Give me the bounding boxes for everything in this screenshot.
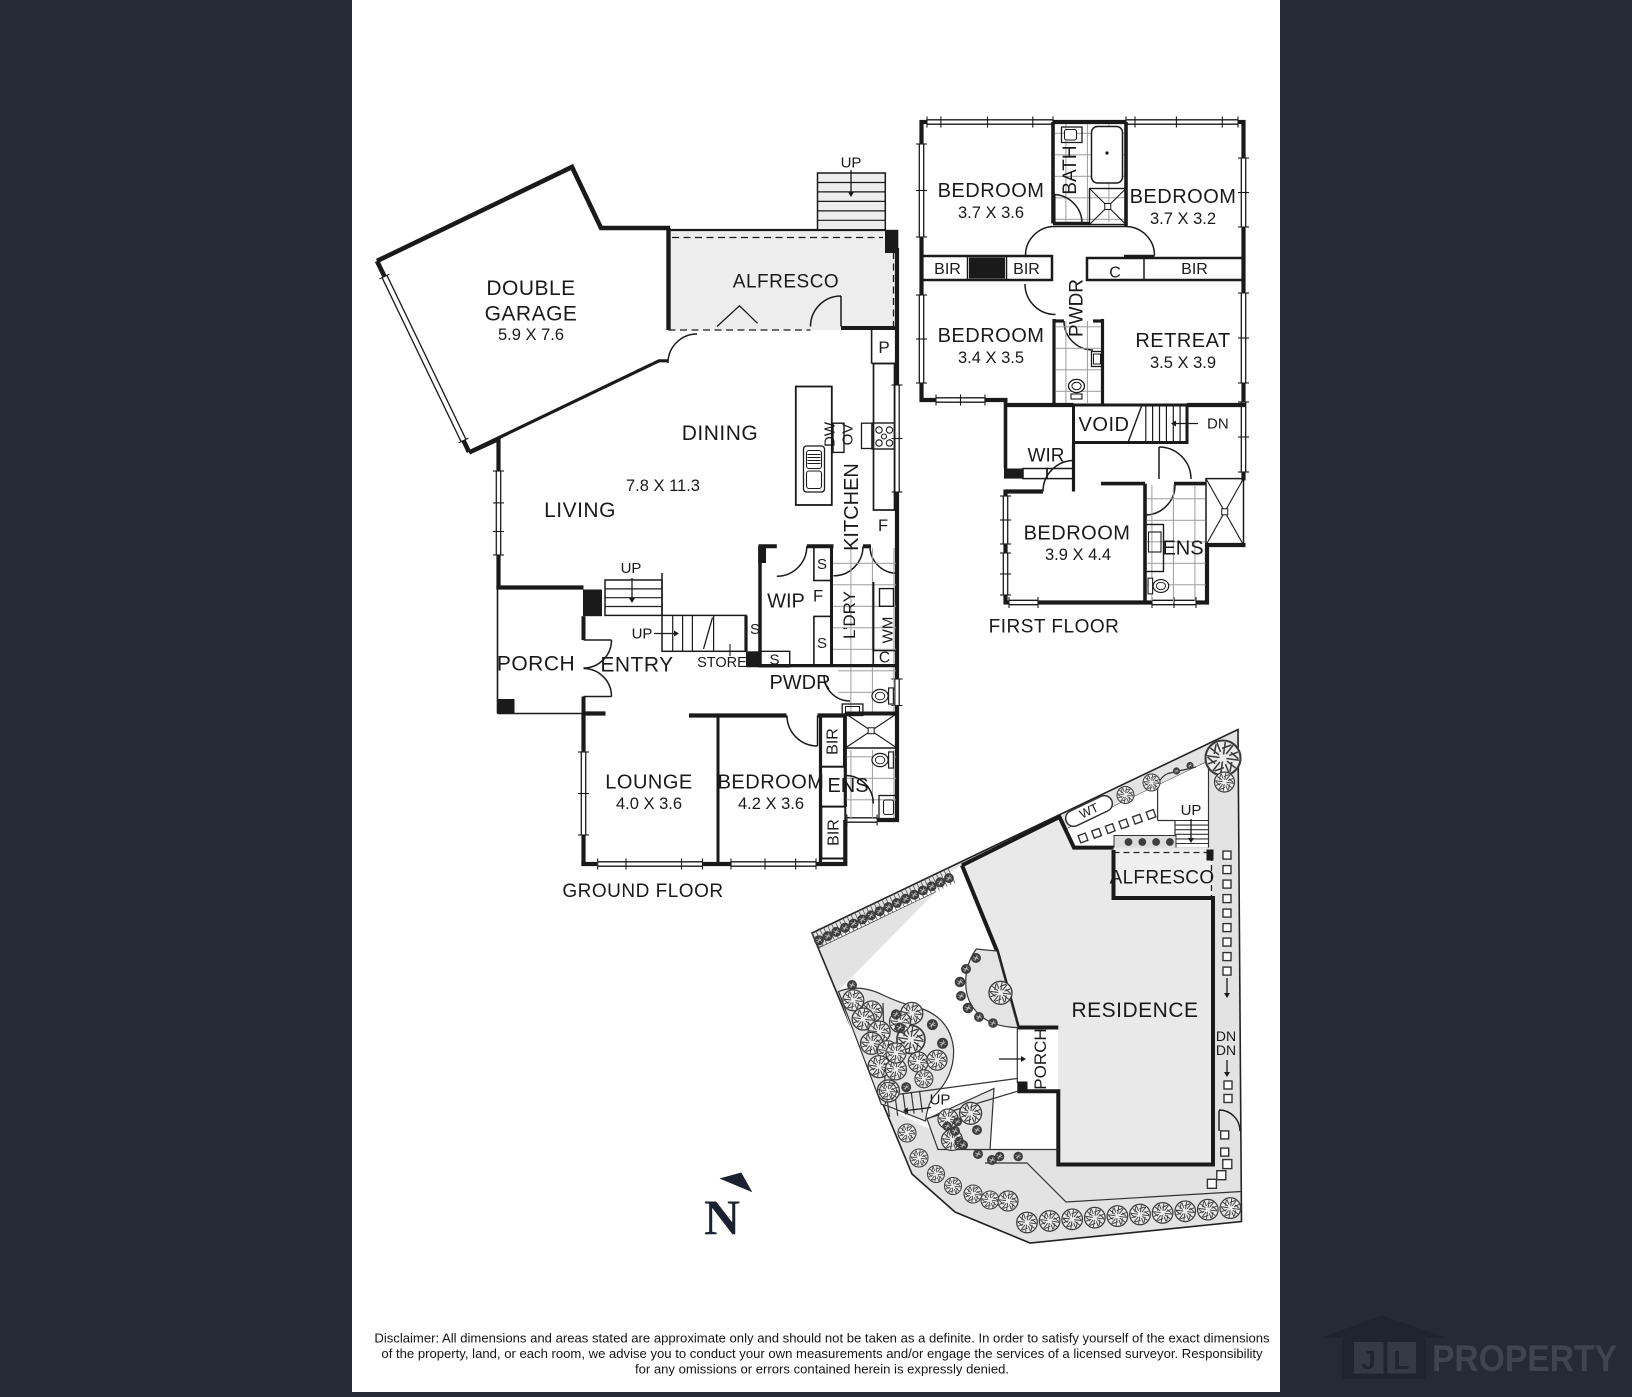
svg-text:3.5 X 3.9: 3.5 X 3.9 <box>1150 354 1216 372</box>
svg-text:UP: UP <box>930 1092 951 1109</box>
svg-text:P: P <box>878 338 889 357</box>
svg-text:BEDROOM: BEDROOM <box>938 325 1045 347</box>
svg-text:GARAGE: GARAGE <box>485 303 578 326</box>
svg-text:3.4 X 3.5: 3.4 X 3.5 <box>958 349 1024 367</box>
svg-text:ENTRY: ENTRY <box>600 654 673 677</box>
svg-text:UP: UP <box>632 626 653 643</box>
svg-text:UP: UP <box>621 560 642 577</box>
svg-text:WIP: WIP <box>767 591 805 613</box>
svg-text:L: L <box>1394 1345 1410 1375</box>
svg-text:4.2 X 3.6: 4.2 X 3.6 <box>738 795 804 813</box>
svg-text:S: S <box>817 635 827 652</box>
svg-text:DN: DN <box>1216 1042 1236 1058</box>
svg-text:BEDROOM: BEDROOM <box>1130 186 1237 208</box>
svg-text:S: S <box>750 621 760 638</box>
svg-text:ALFRESCO: ALFRESCO <box>733 272 839 293</box>
svg-text:3.7 X 3.2: 3.7 X 3.2 <box>1150 210 1216 228</box>
svg-text:UP: UP <box>1181 802 1202 819</box>
svg-text:for any omissions or errors co: for any omissions or errors contained he… <box>635 1362 1009 1377</box>
svg-text:PWDR: PWDR <box>769 672 830 694</box>
svg-text:7.8 X 11.3: 7.8 X 11.3 <box>626 477 700 495</box>
svg-text:L’DRY: L’DRY <box>840 591 859 639</box>
svg-text:BIR: BIR <box>1181 261 1208 278</box>
svg-text:BEDROOM: BEDROOM <box>718 772 825 794</box>
svg-text:BIR: BIR <box>826 819 843 846</box>
svg-text:PROPERTY: PROPERTY <box>1432 1338 1617 1379</box>
svg-text:WIR: WIR <box>1028 446 1065 467</box>
svg-text:N: N <box>704 1189 740 1245</box>
svg-text:BATH: BATH <box>1060 145 1081 194</box>
svg-text:F: F <box>813 588 823 606</box>
svg-text:OV: OV <box>840 424 857 446</box>
svg-text:LIVING: LIVING <box>544 499 616 522</box>
svg-text:WM: WM <box>880 617 897 644</box>
svg-text:RETREAT: RETREAT <box>1135 330 1230 352</box>
svg-text:STORE: STORE <box>697 655 747 671</box>
svg-text:3.9 X 4.4: 3.9 X 4.4 <box>1045 546 1111 564</box>
svg-text:of the property, land, or each: of the property, land, or each room, we … <box>381 1346 1263 1361</box>
svg-text:BIR: BIR <box>934 261 961 278</box>
svg-text:ENS: ENS <box>1162 538 1203 560</box>
svg-text:VOID: VOID <box>1079 414 1130 436</box>
svg-text:3.7 X 3.6: 3.7 X 3.6 <box>958 204 1024 222</box>
svg-text:PORCH: PORCH <box>1031 1028 1050 1089</box>
svg-text:LOUNGE: LOUNGE <box>605 772 692 794</box>
svg-text:Disclaimer: All dimensions and: Disclaimer: All dimensions and areas sta… <box>374 1331 1270 1346</box>
svg-text:BIR: BIR <box>1013 261 1040 278</box>
svg-text:DN: DN <box>1207 416 1229 433</box>
svg-text:PORCH: PORCH <box>497 653 575 676</box>
svg-text:BEDROOM: BEDROOM <box>938 180 1045 202</box>
svg-text:5.9 X 7.6: 5.9 X 7.6 <box>498 326 564 344</box>
svg-text:ALFRESCO: ALFRESCO <box>1110 868 1215 889</box>
svg-text:4.0 X 3.6: 4.0 X 3.6 <box>616 795 682 813</box>
svg-text:J: J <box>1361 1345 1375 1375</box>
svg-text:BEDROOM: BEDROOM <box>1024 523 1131 545</box>
svg-text:RESIDENCE: RESIDENCE <box>1071 999 1198 1022</box>
svg-text:KITCHEN: KITCHEN <box>841 463 863 551</box>
svg-text:BIR: BIR <box>825 728 842 755</box>
svg-text:ENS: ENS <box>827 775 868 797</box>
svg-text:S: S <box>817 556 827 573</box>
svg-text:UP: UP <box>841 155 862 172</box>
svg-text:F: F <box>878 517 888 535</box>
svg-text:C: C <box>879 650 890 667</box>
svg-text:DW: DW <box>822 421 839 447</box>
svg-text:S: S <box>769 651 779 668</box>
svg-text:PWDR: PWDR <box>1067 279 1088 337</box>
svg-text:DINING: DINING <box>682 422 759 445</box>
svg-text:GROUND FLOOR: GROUND FLOOR <box>562 881 723 902</box>
svg-text:FIRST FLOOR: FIRST FLOOR <box>989 617 1120 638</box>
svg-text:C: C <box>1109 265 1121 282</box>
svg-text:DOUBLE: DOUBLE <box>486 277 575 300</box>
